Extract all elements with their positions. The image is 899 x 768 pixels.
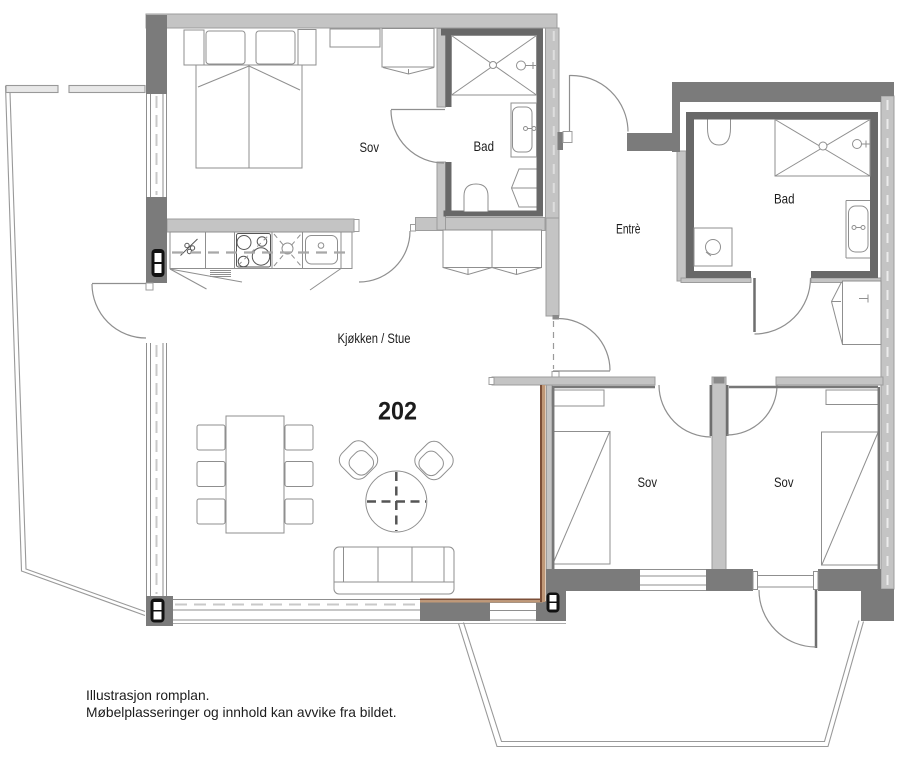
svg-text:202: 202 (378, 398, 417, 426)
svg-text:Kjøkken / Stue: Kjøkken / Stue (338, 330, 411, 346)
svg-text:Sov: Sov (360, 139, 380, 155)
svg-text:Bad: Bad (474, 138, 495, 154)
svg-text:Sov: Sov (774, 474, 794, 490)
svg-text:Bad: Bad (774, 191, 795, 207)
svg-text:Entrè: Entrè (616, 221, 641, 237)
svg-text:Sov: Sov (638, 474, 658, 490)
svg-text:Møbelplasseringer og innhold k: Møbelplasseringer og innhold kan avvike … (86, 705, 397, 720)
svg-text:Illustrasjon romplan.: Illustrasjon romplan. (86, 688, 209, 703)
